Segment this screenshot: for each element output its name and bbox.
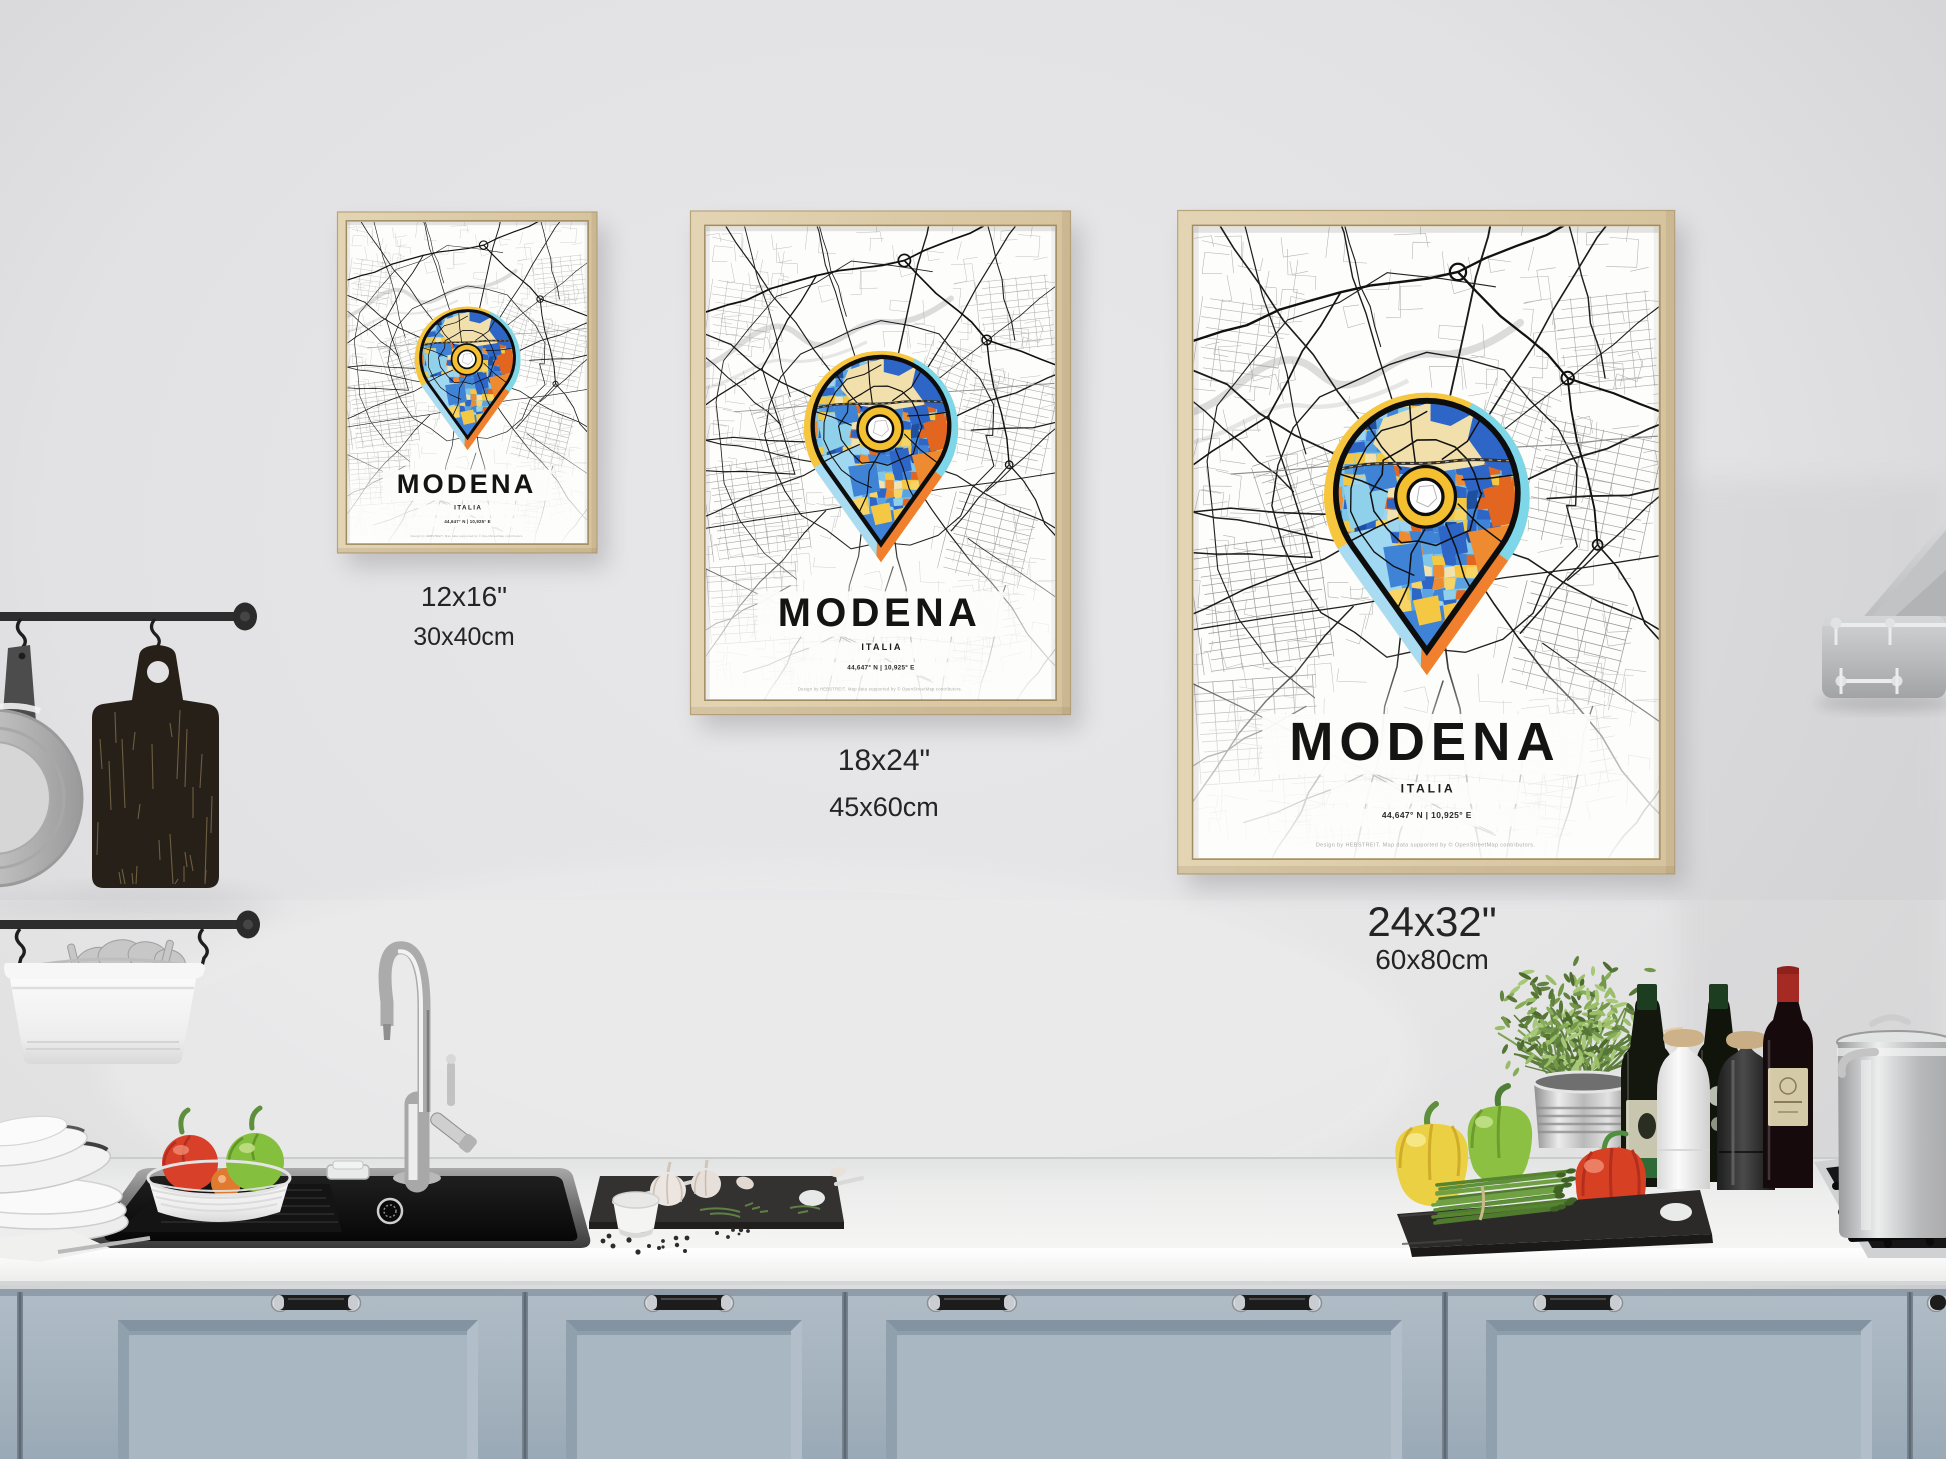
svg-text:18x24": 18x24": [838, 744, 930, 777]
svg-text:24x32": 24x32": [1367, 898, 1496, 945]
svg-text:45x60cm: 45x60cm: [829, 792, 939, 822]
svg-text:30x40cm: 30x40cm: [413, 623, 514, 651]
svg-text:60x80cm: 60x80cm: [1375, 944, 1489, 975]
svg-text:12x16": 12x16": [421, 581, 507, 612]
